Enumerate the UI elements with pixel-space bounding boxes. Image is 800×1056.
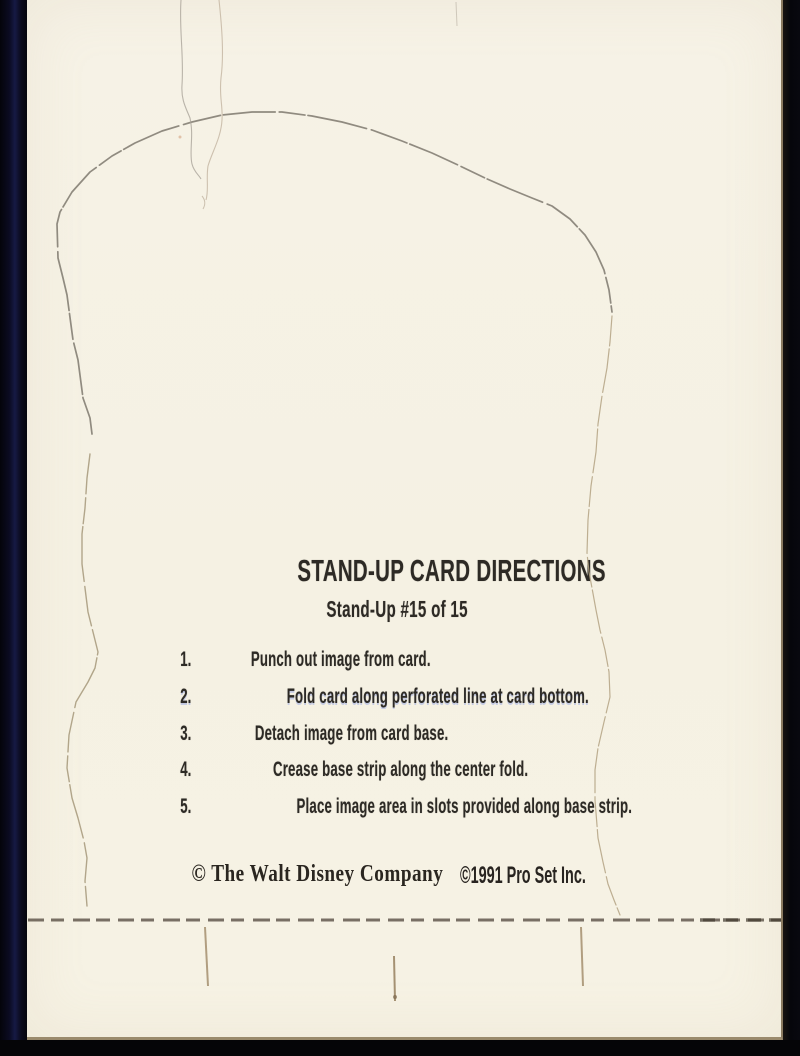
direction-3-number: 3.	[180, 723, 191, 744]
card-subtitle: Stand-Up #15 of 15	[326, 598, 467, 621]
direction-5-number: 5.	[180, 796, 191, 817]
scan-edge-left	[0, 0, 27, 1056]
direction-5-text: Place image area in slots provided along…	[297, 796, 633, 817]
direction-2-text: Fold card along perforated line at card …	[287, 686, 589, 707]
copyright-proset: ©1991 Pro Set Inc.	[460, 864, 586, 888]
direction-2-number: 2.	[180, 686, 191, 707]
scan-edge-right	[783, 0, 800, 1056]
copyright-disney: © The Walt Disney Company	[191, 862, 443, 886]
direction-3-text: Detach image from card base.	[255, 723, 449, 744]
direction-1-text: Punch out image from card.	[251, 649, 431, 670]
direction-4-number: 4.	[180, 759, 191, 780]
direction-1-number: 1.	[180, 649, 191, 670]
card-back: STAND-UP CARD DIRECTIONS Stand-Up #15 of…	[27, 0, 783, 1040]
direction-4-text: Crease base strip along the center fold.	[273, 759, 528, 780]
scan-edge-bottom	[0, 1040, 800, 1056]
card-title: STAND-UP CARD DIRECTIONS	[297, 555, 605, 586]
